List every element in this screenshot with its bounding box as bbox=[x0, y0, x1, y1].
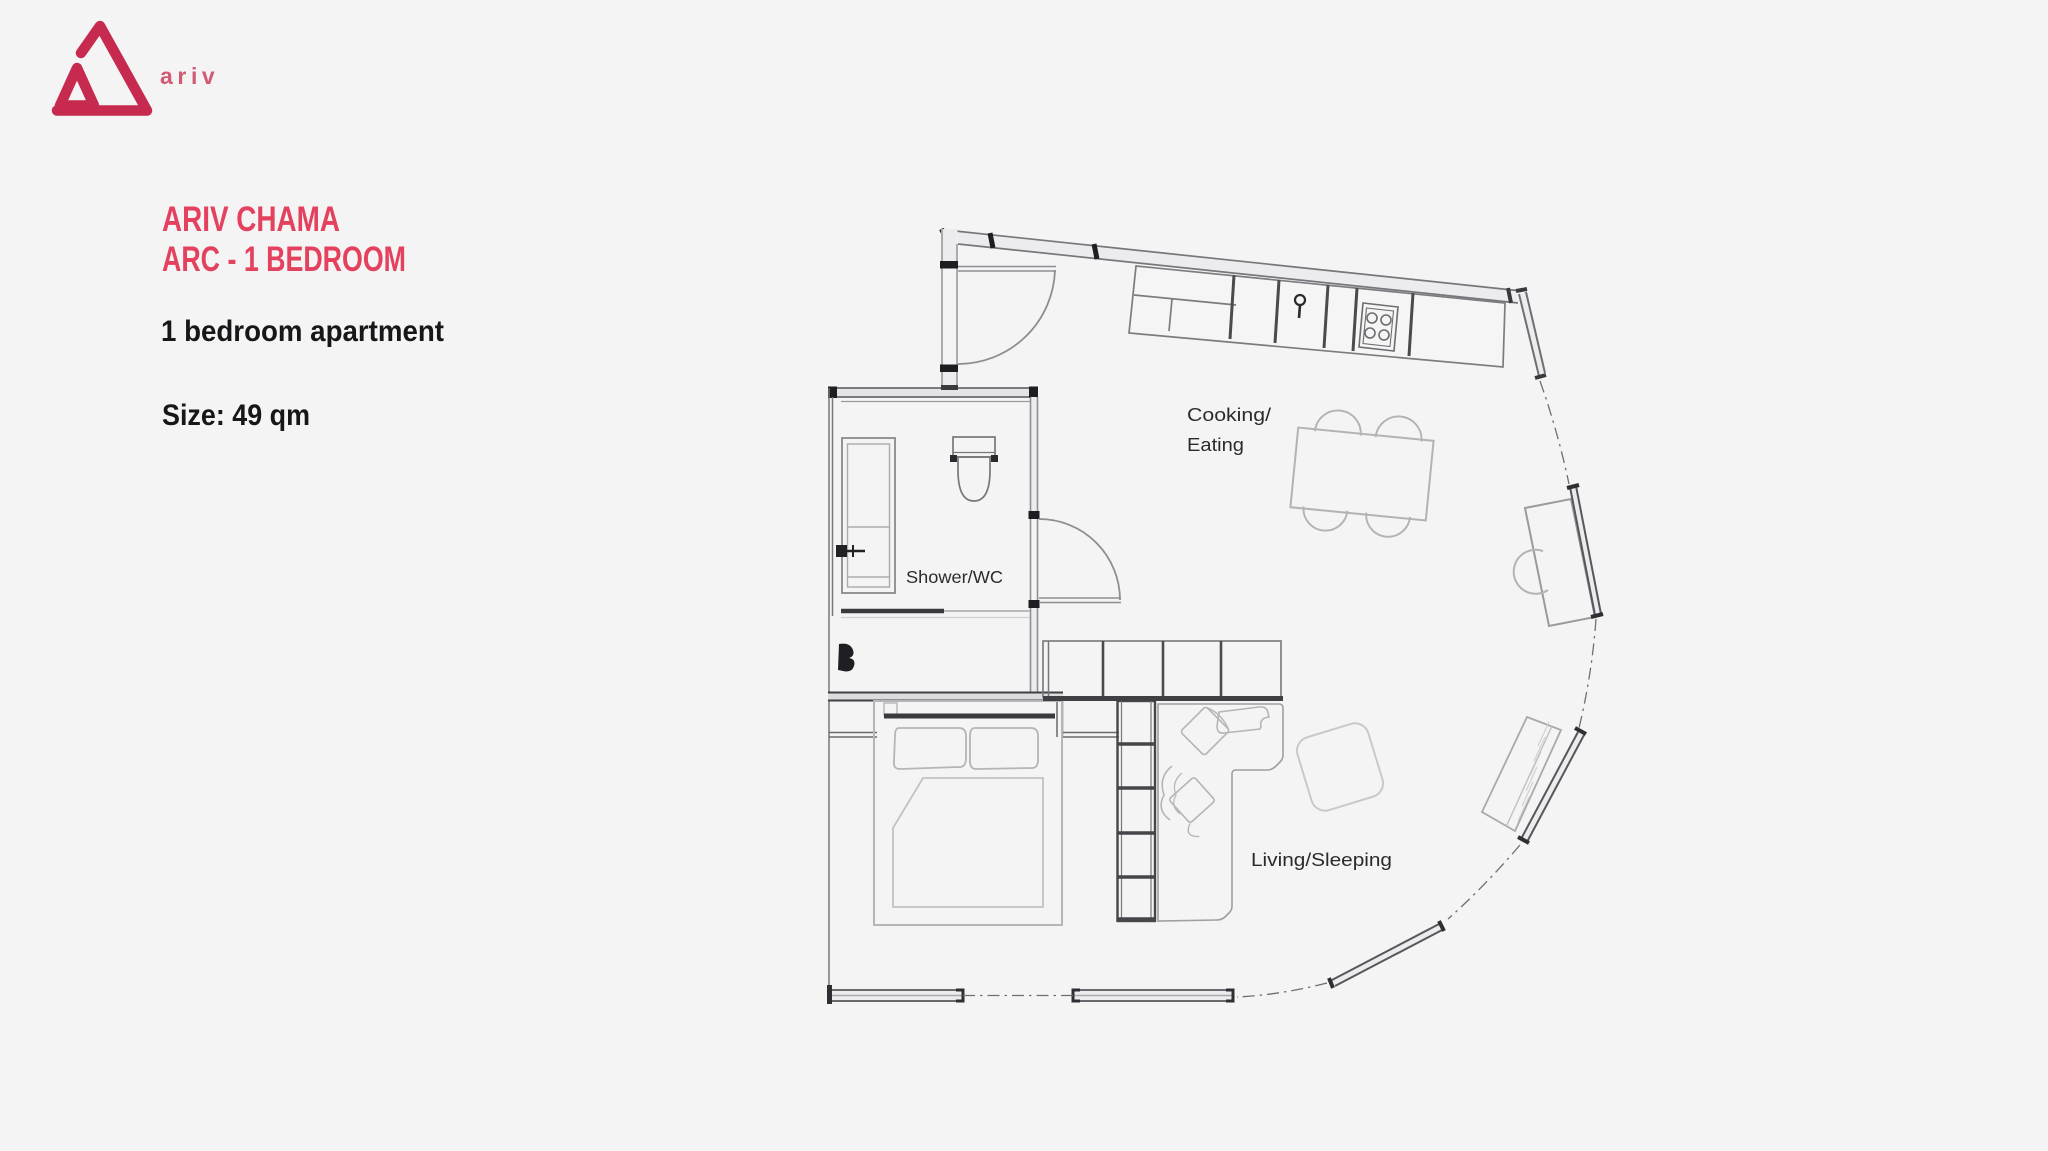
svg-text:Living/Sleeping: Living/Sleeping bbox=[1251, 849, 1392, 870]
svg-text:Cooking/: Cooking/ bbox=[1187, 405, 1271, 425]
svg-text:Size: 49 qm: Size: 49 qm bbox=[162, 399, 310, 432]
svg-text:ariv: ariv bbox=[160, 63, 219, 89]
svg-text:Shower/WC: Shower/WC bbox=[906, 567, 1003, 587]
svg-text:ARIV CHAMA: ARIV CHAMA bbox=[162, 200, 340, 239]
svg-text:ARC - 1 BEDROOM: ARC - 1 BEDROOM bbox=[162, 240, 406, 279]
svg-text:Eating: Eating bbox=[1187, 435, 1244, 455]
svg-text:1 bedroom apartment: 1 bedroom apartment bbox=[161, 315, 444, 348]
